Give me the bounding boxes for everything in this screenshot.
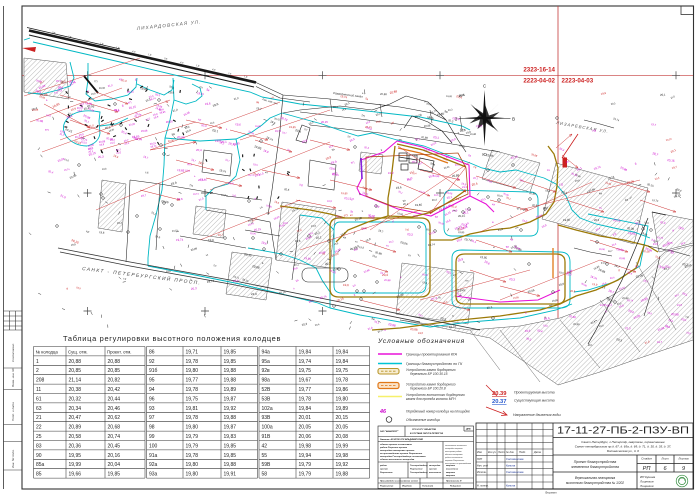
svg-text:В СОСТАВЕ ОКРУГА ПЕТЕРГОФ: В СОСТАВЕ ОКРУГА ПЕТЕРГОФ [410,432,443,435]
svg-text:92а: 92а [149,462,158,468]
svg-text:19,80: 19,80 [186,472,199,478]
svg-text:застройка планировки проект: застройка планировки проект [380,449,414,452]
svg-text:20.37: 20.37 [492,399,507,405]
svg-text:Рубцовой: Рубцовой [450,485,461,488]
svg-text:92в: 92в [262,368,271,374]
svg-text:19,9: 19,9 [233,279,239,283]
svg-text:19,85: 19,85 [446,95,453,98]
svg-text:20,32: 20,32 [69,396,82,402]
svg-text:Границы проектирования КГА: Границы проектирования КГА [406,353,458,357]
svg-text:20,88: 20,88 [424,123,431,128]
svg-text:Условные обозначения: Условные обозначения [377,337,465,345]
svg-text:20,15: 20,15 [365,125,372,129]
svg-text:9: 9 [682,466,685,472]
svg-text:Кунина: Кунина [506,464,516,468]
svg-text:работ: работ [379,464,387,467]
svg-text:93В: 93В [262,415,272,421]
svg-text:20,4: 20,4 [117,221,123,225]
svg-text:20,04: 20,04 [108,462,121,468]
svg-text:21,0: 21,0 [251,292,257,296]
svg-text:20,3: 20,3 [332,171,339,176]
svg-text:20,38: 20,38 [69,387,82,393]
svg-text:20,06: 20,06 [166,119,174,124]
svg-text:СРО И ОГУ ОБЪЕКТОВ: СРО И ОГУ ОБЪЕКТОВ [412,429,436,431]
svg-text:Обозначение колодца: Обозначение колодца [406,418,440,422]
svg-text:работ согласовано: работ согласовано [444,457,462,459]
svg-text:Формат: Формат [545,491,557,495]
svg-text:квартал: квартал [446,475,456,477]
svg-text:21,0: 21,0 [677,303,683,307]
svg-text:19,74: 19,74 [275,130,282,133]
svg-text:19,6: 19,6 [295,239,301,243]
svg-text:20,88: 20,88 [619,257,626,260]
svg-text:19,79: 19,79 [299,472,312,478]
svg-text:59В: 59В [262,462,272,468]
svg-text:20,3: 20,3 [532,203,538,207]
svg-text:20,88: 20,88 [32,109,39,112]
svg-text:квартал: квартал [446,465,456,467]
svg-text:Порядковый номер колодца на пл: Порядковый номер колодца на площадке [406,410,470,414]
svg-text:19,6: 19,6 [205,101,211,106]
svg-text:19,66: 19,66 [69,472,82,478]
svg-text:Кунина: Кунина [506,484,516,488]
svg-text:19,9: 19,9 [57,89,63,92]
svg-text:20,06: 20,06 [99,87,106,90]
svg-text:20,4: 20,4 [228,181,234,186]
svg-text:20,88: 20,88 [470,133,477,136]
svg-text:20,1: 20,1 [588,345,593,347]
svg-text:19,75: 19,75 [186,396,199,402]
svg-text:19,89: 19,89 [224,387,237,393]
svg-text:61: 61 [36,396,42,402]
svg-text:РП: РП [643,466,652,472]
svg-text:№ док.: № док. [506,450,515,454]
svg-text:Дата: Дата [533,450,541,454]
svg-text:100а: 100а [262,425,273,431]
svg-text:20,89: 20,89 [69,425,82,431]
svg-text:высотного: высотного [446,468,459,470]
svg-text:83: 83 [36,443,42,449]
svg-text:20,3: 20,3 [98,154,104,159]
svg-text:Лицензия: Лицензия [639,484,654,488]
svg-text:19,94: 19,94 [299,453,312,459]
svg-text:20,46: 20,46 [108,406,121,412]
svg-text:92: 92 [149,359,155,365]
svg-text:Санкт-Петербург, г.Петергоф, к: Санкт-Петербург, г.Петергоф, кварталы, о… [581,440,665,444]
svg-text:Стадия: Стадия [641,457,652,461]
svg-text:19,84: 19,84 [336,349,349,355]
svg-text:19,9: 19,9 [543,205,549,210]
svg-text:20,4: 20,4 [570,289,576,293]
svg-text:Проект благоустройства: Проект благоустройства [574,460,617,464]
svg-text:58: 58 [262,472,268,478]
svg-text:высотного благоустройства № 1/: высотного благоустройства № 1/202 [566,481,624,485]
svg-text:Границы благоустройство по ГК: Границы благоустройство по ГК [406,362,463,366]
svg-text:98: 98 [149,425,155,431]
svg-text:2: 2 [36,368,39,374]
svg-text:20,88: 20,88 [529,191,536,196]
svg-text:21,14: 21,14 [69,378,82,384]
svg-text:20,1: 20,1 [198,178,204,182]
svg-text:100: 100 [149,443,158,449]
svg-text:Лицензия: Лицензия [639,480,654,484]
svg-text:Госстройнадзор: Госстройнадзор [410,471,428,474]
svg-text:Направление движения воды: Направление движения воды [513,413,561,417]
svg-text:Произведено согласование сет: Произведено согласование сетей [380,480,418,483]
svg-text:20,3: 20,3 [635,221,641,226]
svg-text:99: 99 [149,434,155,440]
svg-text:11: 11 [36,387,41,393]
svg-text:94а: 94а [262,349,271,355]
svg-text:95а: 95а [262,359,271,365]
svg-text:20,85: 20,85 [108,368,121,374]
svg-text:63: 63 [36,406,42,412]
svg-text:20,06: 20,06 [643,249,650,254]
svg-text:19,84: 19,84 [336,359,349,365]
svg-text:Разрешение: Разрешение [410,468,424,470]
svg-text:102а: 102а [262,406,273,412]
svg-text:19,7: 19,7 [456,197,462,201]
svg-text:96: 96 [149,396,155,402]
svg-text:№ колодца: № колодца [36,349,59,354]
svg-text:19,6: 19,6 [396,185,402,190]
svg-text:17-11-27-ПБ-2-ПЗУ-ВП: 17-11-27-ПБ-2-ПЗУ-ВП [557,426,689,437]
svg-text:2223-04-03: 2223-04-03 [562,78,594,85]
svg-text:застройка Госстройнадзор согла: застройка Госстройнадзор согласовано [380,455,426,458]
svg-text:20,34: 20,34 [69,406,82,412]
svg-text:высотного: высотного [429,472,442,474]
svg-text:20,88: 20,88 [380,92,387,96]
svg-text:91б: 91б [149,368,158,374]
svg-text:Проект. отм.: Проект. отм. [107,349,131,354]
svg-text:19,84: 19,84 [299,349,312,355]
svg-text:90: 90 [36,453,42,459]
svg-text:20,74: 20,74 [108,434,121,440]
svg-text:20,88: 20,88 [573,322,580,326]
svg-text:208: 208 [36,378,45,384]
svg-text:21,0: 21,0 [653,241,659,246]
svg-text:Проектируемая высота: Проектируемая высота [514,391,555,395]
svg-text:85: 85 [36,472,42,478]
svg-text:97: 97 [149,415,155,421]
svg-text:Заказчик: АО КРОК ОГК ВЛАД: Заказчик: АО КРОК ОГК ВЛАДИМИРСКИЙ [380,438,423,441]
svg-text:элементов благоустройства: элементов благоустройства [571,465,619,469]
svg-text:19,79: 19,79 [186,434,199,440]
svg-text:19,6: 19,6 [525,328,531,333]
svg-text:19,85: 19,85 [132,134,140,139]
svg-text:19,99: 19,99 [69,462,82,468]
svg-text:21,0: 21,0 [625,326,631,330]
svg-text:20,3: 20,3 [191,286,198,291]
svg-text:Существующая высота: Существующая высота [514,399,555,403]
svg-text:20,3: 20,3 [407,232,414,237]
svg-text:Лист: Лист [497,450,506,454]
svg-text:19,7: 19,7 [657,340,663,344]
svg-text:20,3: 20,3 [413,215,419,218]
svg-text:19,6: 19,6 [166,270,171,273]
svg-text:планировки работ: планировки работ [445,451,462,453]
svg-text:19,98: 19,98 [336,453,349,459]
svg-text:20,16: 20,16 [108,453,121,459]
svg-text:Согласовано: Согласовано [11,343,15,362]
svg-text:20,06: 20,06 [299,434,312,440]
svg-text:ТП: ТП [592,129,596,133]
svg-text:работ Лицензия проект: работ Лицензия проект [379,446,407,449]
svg-text:19,78: 19,78 [186,415,199,421]
svg-text:20,06: 20,06 [141,129,148,133]
svg-text:20,05: 20,05 [299,425,312,431]
svg-text:19,6: 19,6 [343,283,349,287]
svg-text:19,7: 19,7 [608,251,613,253]
svg-text:19,92: 19,92 [336,462,349,468]
svg-text:95: 95 [149,378,155,384]
svg-text:19,85: 19,85 [341,191,348,195]
svg-text:квартал Разрешение: квартал Разрешение [445,460,464,462]
svg-text:19,71: 19,71 [186,349,199,355]
svg-text:19,85: 19,85 [224,443,237,449]
svg-text:20,1: 20,1 [660,93,666,97]
svg-text:19,98: 19,98 [299,443,312,449]
svg-text:20,42: 20,42 [108,387,121,393]
svg-text:19,85: 19,85 [289,125,296,129]
svg-text:20,3: 20,3 [325,261,332,266]
svg-text:2323-16-14: 2323-16-14 [523,67,555,74]
svg-text:19,9: 19,9 [327,200,333,203]
svg-text:19,88: 19,88 [224,368,237,374]
svg-text:19,85: 19,85 [628,231,636,236]
svg-text:Протоколы N: Протоколы N [446,481,462,483]
svg-text:20,1: 20,1 [473,177,479,180]
svg-text:19,77: 19,77 [299,387,312,393]
svg-text:ТП: ТП [343,213,348,218]
svg-text:20,3: 20,3 [594,218,600,222]
svg-text:Нач. отд: Нач. отд [477,464,488,468]
svg-text:ДНВ: ДНВ [465,429,471,431]
svg-text:застройка квартал: застройка квартал [444,447,464,450]
svg-text:Сапожникова: Сапожникова [506,470,524,474]
svg-text:20,47: 20,47 [69,415,82,421]
svg-text:19,6: 19,6 [235,122,242,127]
svg-text:Подп. и дата: Подп. и дата [11,402,15,421]
svg-text:19,9: 19,9 [168,90,175,95]
svg-text:Ботаническая ул., д. 6: Ботаническая ул., д. 6 [607,449,639,453]
svg-text:19,78: 19,78 [186,359,199,365]
svg-text:53В: 53В [262,396,272,402]
svg-text:19,92: 19,92 [224,406,237,412]
svg-text:2а: 2а [462,288,466,292]
svg-text:бережного БР 100.20.8: бережного БР 100.20.8 [410,387,446,391]
svg-text:91В: 91В [262,434,272,440]
svg-text:застройка: застройка [429,464,441,467]
svg-text:2223-04-02: 2223-04-02 [523,78,555,85]
svg-text:21: 21 [36,415,42,421]
svg-text:объект планировки: объект планировки [445,454,464,456]
svg-text:22: 22 [36,425,42,431]
svg-text:19,85: 19,85 [255,126,262,128]
svg-text:Жердева: Жердева [401,485,412,488]
svg-text:19,9: 19,9 [592,282,598,287]
svg-text:52В: 52В [262,387,272,393]
svg-text:проект: проект [380,468,388,470]
svg-text:20,88: 20,88 [69,359,82,365]
svg-text:19,99: 19,99 [336,443,349,449]
svg-text:20,45: 20,45 [108,443,121,449]
svg-text:20,68: 20,68 [108,425,121,431]
svg-text:20,88: 20,88 [410,327,418,332]
svg-text:19,80: 19,80 [186,368,199,374]
svg-text:20.39: 20.39 [492,391,507,397]
svg-text:19,6: 19,6 [418,331,424,335]
svg-text:Взам. инв. №: Взам. инв. № [11,368,15,387]
svg-text:19,75: 19,75 [299,368,312,374]
svg-text:19,87: 19,87 [224,425,237,431]
svg-text:19,86: 19,86 [336,387,349,393]
svg-text:25: 25 [36,434,42,440]
svg-text:93: 93 [149,406,155,412]
svg-text:20,15: 20,15 [613,218,621,223]
svg-text:Н. контр.: Н. контр. [477,484,489,488]
svg-text:19,78: 19,78 [336,378,349,384]
svg-text:20,3: 20,3 [105,125,111,130]
svg-text:19,85: 19,85 [563,218,571,222]
svg-text:19,74: 19,74 [176,238,184,242]
svg-text:Устинова: Устинова [422,486,434,488]
svg-text:Листов: Листов [677,457,689,461]
svg-text:19,88: 19,88 [336,472,349,478]
svg-text:ТП: ТП [559,183,563,187]
svg-text:20,88: 20,88 [177,135,185,140]
svg-text:94: 94 [149,387,155,393]
svg-text:19,78: 19,78 [186,453,199,459]
svg-text:Подп.: Подп. [519,450,526,454]
svg-text:Сущ. отм.: Сущ. отм. [68,349,88,354]
svg-text:20,88: 20,88 [384,278,391,282]
svg-text:Исполн.: Исполн. [477,470,487,474]
svg-text:20,88: 20,88 [622,296,629,300]
svg-text:19,74: 19,74 [428,242,436,247]
svg-text:19,6: 19,6 [208,238,214,242]
svg-text:Санкт-петербургским пр.д. 67,: Санкт-петербургским пр.д. 67, д. 65а, д.… [575,445,672,449]
svg-text:46: 46 [379,409,387,415]
svg-text:19,78: 19,78 [299,396,312,402]
svg-text:20,06: 20,06 [599,249,606,251]
svg-text:20,05: 20,05 [336,425,349,431]
svg-text:Сапожникова: Сапожникова [506,457,524,461]
svg-text:20,01: 20,01 [299,415,312,421]
svg-text:20,4: 20,4 [187,163,193,166]
svg-text:Вертикальная планировка: Вертикальная планировка [575,476,615,480]
svg-text:19,6: 19,6 [177,197,183,201]
svg-text:20,4: 20,4 [196,148,202,152]
svg-text:19,88: 19,88 [224,462,237,468]
svg-text:19,74: 19,74 [299,359,312,365]
svg-text:20,44: 20,44 [108,396,121,402]
svg-text:19,75: 19,75 [336,368,349,374]
svg-text:19,79: 19,79 [299,462,312,468]
svg-text:ТП: ТП [45,128,49,132]
svg-text:21,0: 21,0 [311,224,317,228]
svg-text:91а: 91а [149,453,158,459]
svg-text:В: В [512,117,515,122]
svg-text:21,0: 21,0 [110,141,116,145]
svg-text:19,80: 19,80 [186,425,199,431]
svg-text:19,77: 19,77 [186,378,199,384]
svg-text:20,15: 20,15 [127,89,135,94]
svg-text:19,85: 19,85 [600,303,607,307]
svg-text:ТП: ТП [350,160,354,165]
svg-text:19,91: 19,91 [224,472,237,478]
svg-text:19,9: 19,9 [388,171,394,175]
svg-text:20,15: 20,15 [321,120,328,124]
svg-text:камня для проезда колясок МГН: камня для проезда колясок МГН [406,397,456,401]
svg-text:19,95: 19,95 [69,453,82,459]
svg-text:Кол.уч: Кол.уч [488,450,496,454]
svg-text:85а: 85а [36,462,45,468]
svg-text:19,67: 19,67 [299,378,312,384]
svg-text:ЗАО "АВИАПОРТ": ЗАО "АВИАПОРТ" [380,431,399,433]
svg-text:на производство проект Разреше: на производство проект Разрешение [380,452,423,455]
svg-text:19,85: 19,85 [177,168,185,173]
svg-text:19,88: 19,88 [224,378,237,384]
svg-text:20,3: 20,3 [682,262,689,267]
svg-text:Разрешение: Разрешение [380,472,394,474]
svg-text:20,82: 20,82 [108,378,121,384]
svg-text:20,1: 20,1 [333,106,339,109]
svg-text:19,88: 19,88 [224,415,237,421]
svg-text:Разрешение: Разрешение [380,486,394,488]
svg-text:19,84: 19,84 [299,406,312,412]
svg-text:Лист: Лист [660,457,669,461]
svg-text:93а: 93а [149,472,158,478]
svg-text:55: 55 [262,453,268,459]
svg-text:проект: проект [429,468,437,470]
svg-text:объект высотного застройка: объект высотного застройка [380,458,415,461]
svg-text:19,78: 19,78 [186,387,199,393]
svg-text:21,0: 21,0 [462,185,468,189]
svg-text:19,7: 19,7 [218,232,224,237]
svg-text:19,83: 19,83 [224,434,237,440]
svg-text:42: 42 [262,443,268,449]
svg-text:19,85: 19,85 [224,453,237,459]
svg-text:98а: 98а [262,378,271,384]
svg-text:20,36: 20,36 [69,443,82,449]
svg-text:20,15: 20,15 [336,415,349,421]
svg-text:19,6: 19,6 [46,114,52,117]
svg-text:86: 86 [149,349,155,355]
svg-text:19,87: 19,87 [224,396,237,402]
svg-text:20,88: 20,88 [671,312,679,317]
svg-text:согласовано высотного: согласовано высотного [445,445,467,447]
svg-text:20,08: 20,08 [336,434,349,440]
svg-text:Госстройнадзор: Госстройнадзор [410,464,428,467]
svg-text:19,85: 19,85 [224,359,237,365]
svg-text:19,79: 19,79 [186,443,199,449]
svg-text:ИП Кунина: ИП Кунина [640,475,655,479]
svg-text:19,9: 19,9 [221,194,227,197]
svg-text:20,3: 20,3 [509,277,516,282]
svg-text:19,80: 19,80 [336,396,349,402]
svg-text:19,81: 19,81 [186,406,199,412]
svg-text:19,74: 19,74 [248,175,255,177]
svg-text:объект проект согласовано: объект проект согласовано [380,443,413,446]
svg-text:Инв. № подл.: Инв. № подл. [11,449,15,468]
svg-text:20,88: 20,88 [108,359,121,365]
svg-text:19,7: 19,7 [476,124,483,129]
svg-text:ГИП: ГИП [477,457,482,461]
svg-text:ТП: ТП [94,80,98,83]
svg-text:19,80: 19,80 [186,462,199,468]
svg-text:20,85: 20,85 [69,368,82,374]
